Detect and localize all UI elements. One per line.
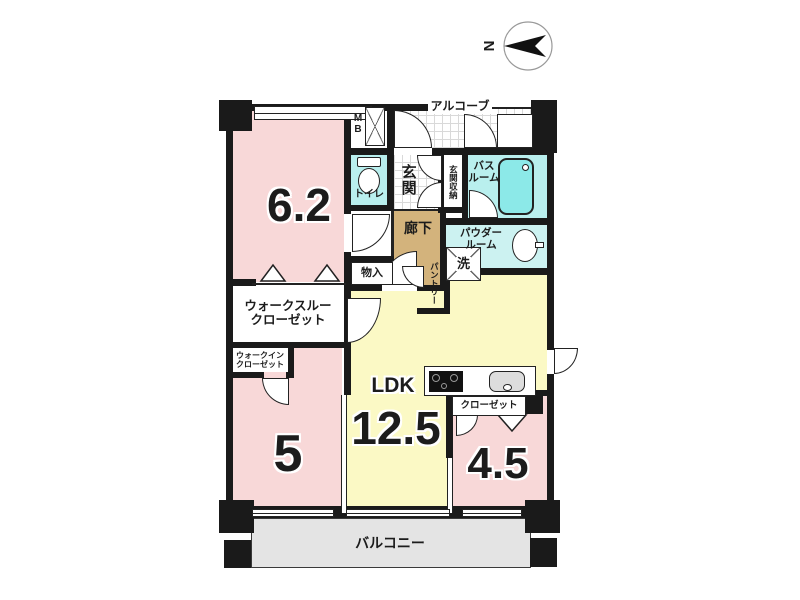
meter-box-icon: [365, 107, 385, 146]
room-label-meter-box: M B: [351, 109, 365, 139]
window-bottom-5: [252, 509, 334, 517]
wall-hall-divider: [391, 211, 394, 256]
alcove-storage-box: [497, 114, 533, 148]
area-label-5: 5: [252, 424, 324, 486]
wall-right-upper: [547, 148, 554, 350]
door-gap-entrance: [395, 148, 431, 155]
compass-needle-icon: [504, 35, 546, 57]
room-label-alcove: アルコーブ: [428, 100, 492, 114]
room-label-entrance: 玄関: [399, 156, 417, 204]
pillar-bottom-right: [525, 500, 560, 533]
room-label-toilet: トイレ: [351, 189, 387, 201]
compass-north-label: N: [482, 38, 498, 54]
floor-plan: 6.2 5 4.5 LDK 12.5 玄関 トイレ バス ルーム 廊下 パウダー…: [0, 0, 800, 600]
wall-left: [226, 104, 233, 518]
wall-alcove-bottom-b: [468, 148, 547, 155]
room-label-balcony: バルコニー: [330, 534, 450, 552]
door-arc-service: [554, 348, 578, 374]
room-label-closet-4.5: クローゼット: [452, 396, 526, 416]
kitchen-sink-drain-icon: [503, 384, 512, 391]
area-label-ldk: 12.5: [337, 400, 455, 456]
window-bottom-ldk: [346, 509, 450, 517]
wall-mb-toilet-right: [387, 104, 394, 205]
pillar-top-right: [531, 100, 557, 153]
wall-toilet-bottom: [344, 205, 394, 211]
door-gap-service: [547, 350, 554, 372]
entrance-step-line: [394, 209, 438, 211]
room-label-pantry: パントリー: [426, 258, 441, 308]
area-label-4.5: 4.5: [452, 436, 544, 492]
toilet-tank-icon: [357, 157, 381, 167]
closet-door-track: [252, 283, 346, 285]
room-label-ldk: LDK: [357, 374, 429, 398]
bathtub-faucet-icon: [522, 164, 529, 171]
wall-wtc-bottom: [226, 342, 346, 348]
stove-burner-icon: [450, 374, 458, 382]
stove-burner-icon: [432, 374, 440, 382]
closet-45-block: [524, 394, 543, 414]
area-label-6.2: 6.2: [249, 177, 349, 233]
room-label-walkthrough-closet: ウォークスルー クローゼット: [238, 297, 338, 329]
room-label-entrance-storage: 玄関収納: [445, 157, 460, 207]
wall-pantry-bottom: [417, 308, 450, 314]
pillar-bottom-right-2: [530, 538, 557, 567]
window-bottom-4.5: [462, 509, 522, 517]
room-label-corridor: 廊下: [397, 219, 439, 237]
powder-faucet-icon: [535, 242, 544, 248]
wall-ldk-top-stub-l: [344, 285, 382, 291]
pillar-top-left: [219, 100, 252, 131]
room-label-walkin-closet: ウォークイン クローゼット: [234, 350, 286, 370]
wall-wic-bottom-a: [226, 372, 264, 378]
room-label-laundry: 洗: [446, 247, 481, 281]
pillar-bottom-left-2: [224, 540, 251, 568]
stove-burner-icon: [441, 383, 447, 389]
compass-circle: [504, 22, 552, 70]
pillar-bottom-left: [219, 500, 254, 533]
wall-right-lower: [547, 374, 554, 518]
wall-bath-bottom: [443, 218, 554, 225]
room-label-bathroom: バス ルーム: [462, 158, 506, 186]
room-label-storage: 物入: [351, 262, 393, 285]
